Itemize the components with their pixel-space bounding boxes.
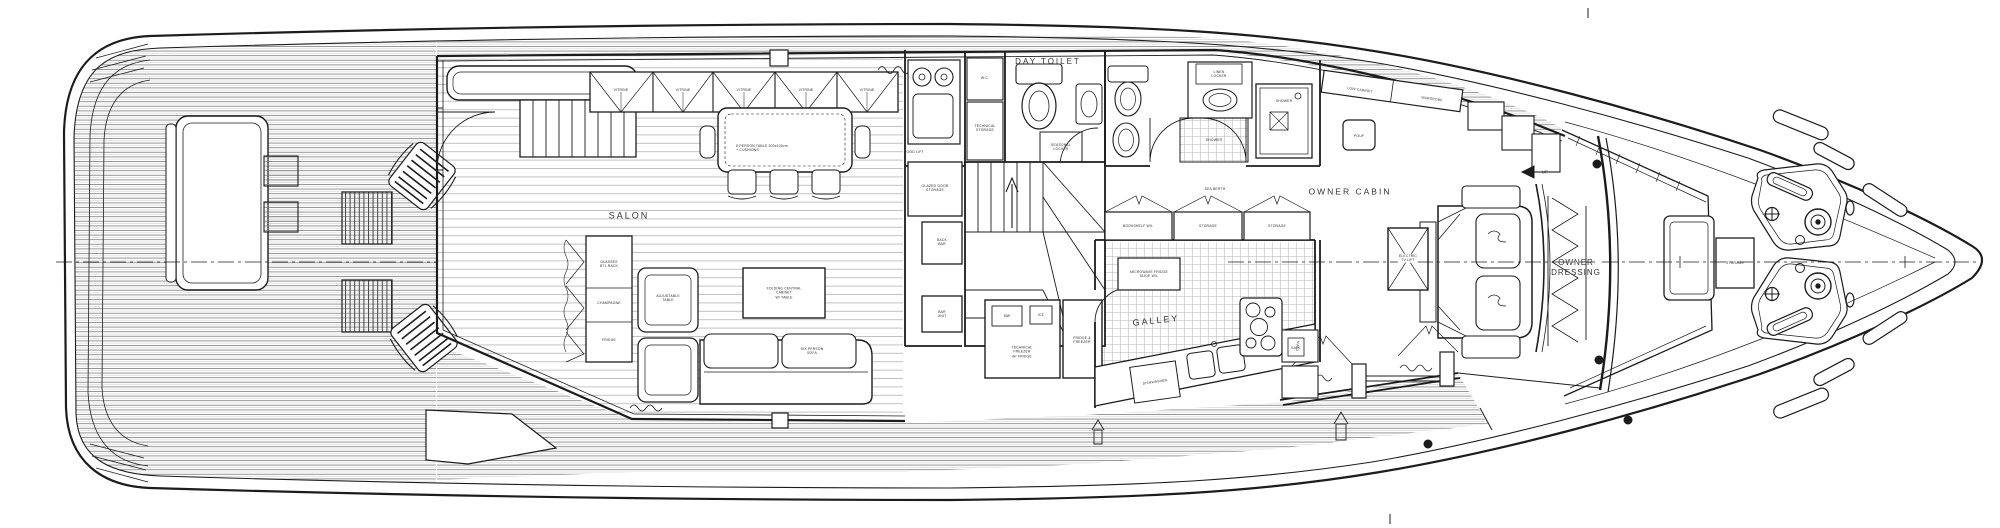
cleat [1593,160,1601,168]
safe-label: SAFE [1291,346,1301,350]
table-spec-label: 8 PERSON TABLE 300x100cm + CUSHIONS [736,144,788,153]
back-bar-label: BACK BAR [937,238,947,247]
headboard-wall [1536,184,1544,352]
vitrine-label: VITRINE [860,88,875,92]
seasonal-locker-label: SEASONAL LOCKER [1051,143,1071,152]
technical-storage-label: TECHNICAL STORAGE [974,124,995,133]
galley-top-cabinets [1105,196,1310,240]
mw-label: MW [1004,314,1010,318]
bow-storage-label: STORAGE [1726,261,1744,265]
food-lift-label: FOOD LIFT [904,150,924,154]
windlass-port [1752,164,1855,250]
toilet [1108,66,1148,116]
champagne-label: CHAMPAGNE [597,301,620,305]
salon-label: SALON [609,210,650,221]
fridge-freezer-label: FRIDGE & FREEZER [1073,336,1091,345]
nightstand [1462,186,1520,208]
main-sofa [700,334,872,404]
cleat [1624,416,1632,424]
up-arrow-icon [1522,166,1534,178]
microwave-fridge-label: MICROWAVE FRIDGE SLIDE W/L [1130,270,1168,279]
cleat [1424,440,1432,448]
engine-vent-grille [342,192,392,244]
shower-cabin [1256,84,1312,158]
cleat [1595,356,1603,364]
vitrine-label: VITRINE [799,88,814,92]
pouf-label: POUF [1354,134,1364,138]
owner-bath [1105,50,1463,166]
folding-cabinet-label: FOLDING CENTRAL CABINET W/ TABLE [767,287,802,300]
stairs-block [905,162,1105,378]
glazed-storage-label: GLAZED DOOR STORAGE [922,184,949,193]
plan-linework [0,0,2000,528]
technical-fridge-box [985,300,1060,378]
technical-fridge-label: TECHNICAL FREEZER W/ FRIDGE [1011,346,1032,359]
bookshelf-label: BOOKSHELF W/L [1123,224,1153,228]
pantry-block [905,50,1105,166]
sofa-label: SIX PERSON SOFA [801,347,824,356]
day-toilet-basin [1076,84,1102,124]
nightstand [1462,336,1520,358]
foredeck-seat [1664,216,1714,300]
bar-unit-label: BAR UNIT [938,310,947,319]
shower-label: SHOWER [1276,99,1292,103]
owner-dressing-label: OWNER DRESSING [1551,258,1601,278]
vitrine-label: VITRINE [676,88,691,92]
shower-label: SHOWER [1206,138,1222,142]
vitrine-label: VITRINE [737,88,752,92]
cooktop [1240,298,1282,356]
owner-cabin-label: OWNER CABIN [1309,187,1392,198]
storage-label: STORAGE [1268,224,1286,228]
yacht-main-deck-plan: SALON DAY TOILET GALLEY OWNER CABIN OWNE… [0,0,2000,528]
engine-vent-grille [342,280,392,332]
tv-lift-label: ELECTRIC TV LIFT [1398,254,1418,263]
fridge-label: FRIDGE [602,338,616,342]
deck-hatch [264,156,298,186]
owner-cabin [1280,102,1600,405]
sea-berth-label: SEA BERTH [1205,187,1226,191]
transom-sunpad [176,116,268,290]
glasses-label: GLASSES BTL RACK [600,260,618,269]
adjustable-table-label: ADJUSTABLE TABLE [656,294,680,303]
ice-label: ICE [1038,313,1044,317]
linen-locker-label: LINEN LOCKER [1211,70,1226,79]
windlass-starboard [1752,258,1855,344]
storage-label: STORAGE [1199,224,1217,228]
day-toilet-wc [1016,64,1062,129]
bidet [1113,123,1139,157]
vitrine-label: VITRINE [614,88,629,92]
owner-bed [1420,206,1532,338]
up-label: UP [1542,169,1548,174]
wc-label: W.C. [981,76,989,80]
deck-hatch [264,202,298,232]
day-toilet-label: DAY TOILET [1015,57,1081,67]
